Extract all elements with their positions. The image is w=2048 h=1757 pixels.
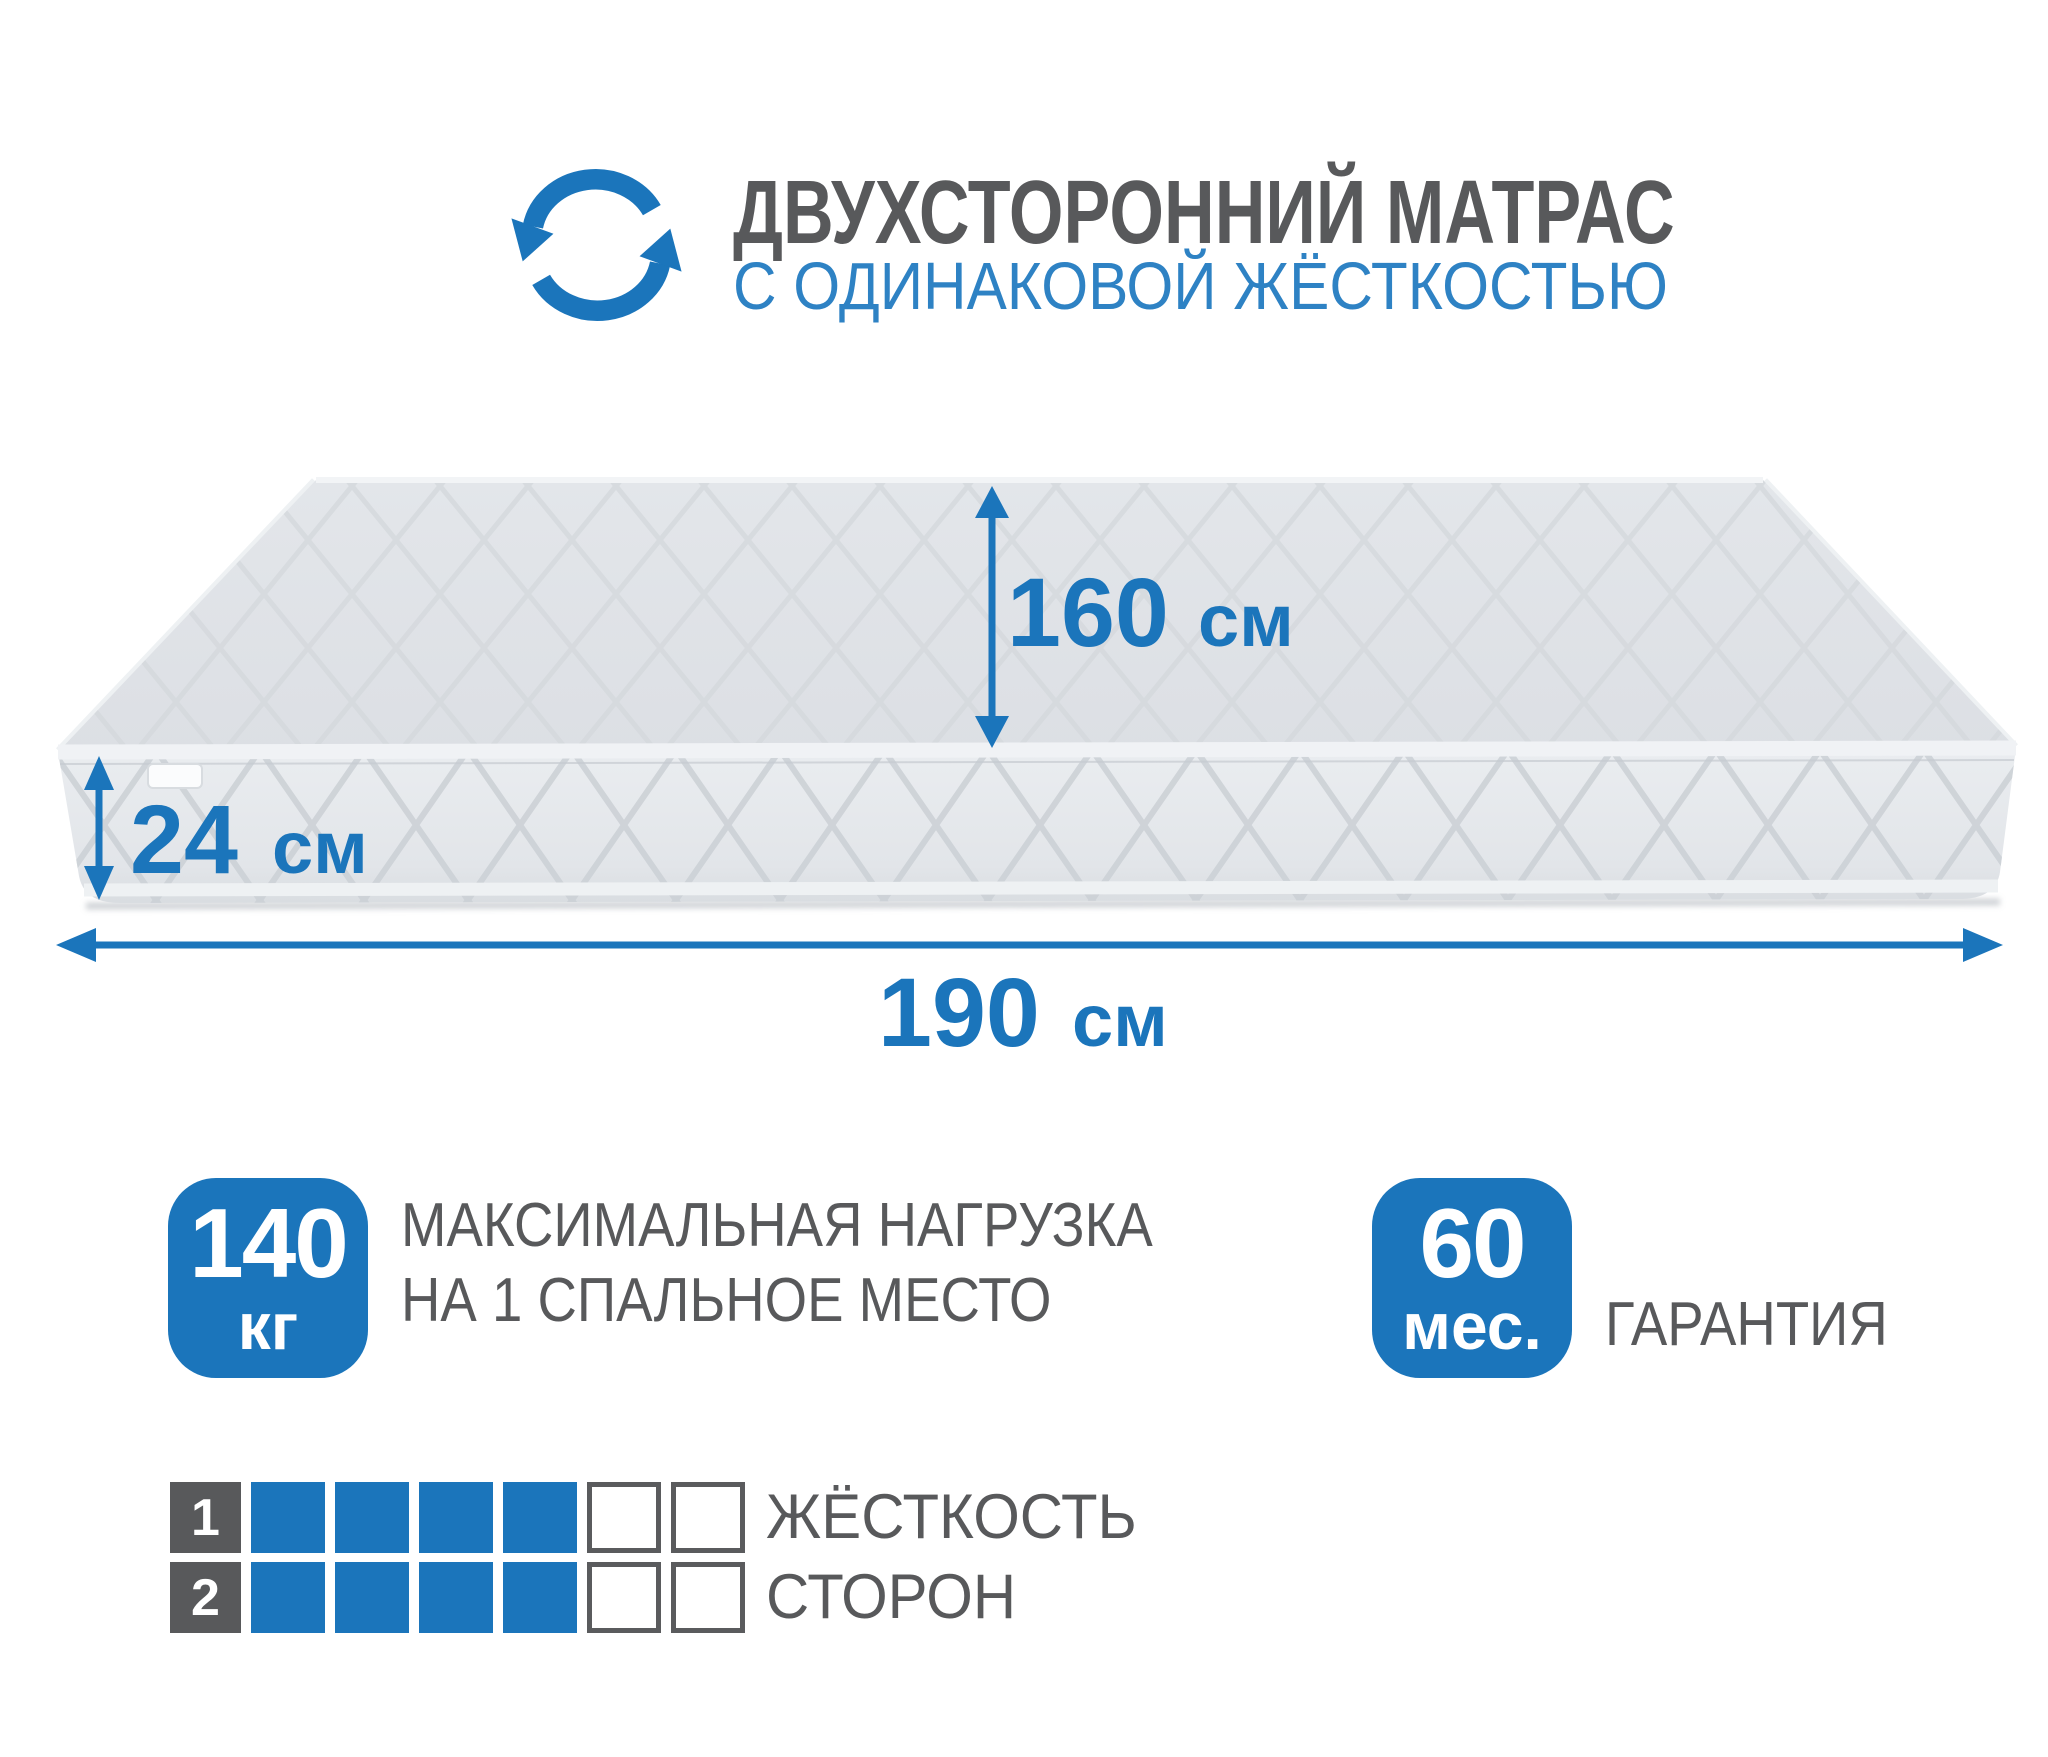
mattress-shadow (86, 902, 2000, 906)
hardness-row-side2: 2 (170, 1562, 745, 1633)
hardness-cell-filled (419, 1482, 493, 1553)
hardness-cell-filled (335, 1482, 409, 1553)
hardness-cell-filled (251, 1482, 325, 1553)
hardness-cell-filled (419, 1562, 493, 1633)
width-value: 190 (878, 958, 1040, 1067)
hardness-scale-label: ЖЁСТКОСТЬ СТОРОН (766, 1477, 1137, 1637)
warranty-badge: 60 мес. (1372, 1178, 1572, 1378)
height-value: 24 (130, 785, 238, 894)
hardness-cell-filled (251, 1562, 325, 1633)
side-number: 1 (170, 1482, 241, 1553)
warranty-label: ГАРАНТИЯ (1605, 1225, 1888, 1425)
hardness-scale: 1 2 (170, 1482, 745, 1633)
height-unit: см (272, 806, 368, 889)
depth-unit: см (1198, 579, 1294, 662)
hardness-cell-empty (587, 1482, 661, 1553)
width-unit: см (1072, 979, 1168, 1062)
max-load-label: МАКСИМАЛЬНАЯ НАГРУЗКА НА 1 СПАЛЬНОЕ МЕСТ… (401, 1188, 1153, 1338)
page-title: ДВУХСТОРОННИЙ МАТРАС (733, 166, 1675, 261)
max-load-value: 140 (189, 1197, 347, 1290)
hardness-cell-filled (503, 1482, 577, 1553)
warranty-unit: мес. (1402, 1293, 1542, 1359)
max-load-badge: 140 кг (168, 1178, 368, 1378)
max-load-unit: кг (238, 1293, 299, 1359)
side-number: 2 (170, 1562, 241, 1633)
max-load-label-line2: НА 1 СПАЛЬНОЕ МЕСТО (401, 1263, 1153, 1338)
hardness-cell-empty (671, 1562, 745, 1633)
rotate-arrows-icon (494, 164, 699, 326)
hardness-label-line1: ЖЁСТКОСТЬ (766, 1477, 1137, 1557)
hardness-cell-filled (335, 1562, 409, 1633)
hardness-cell-empty (587, 1562, 661, 1633)
hardness-cell-filled (503, 1562, 577, 1633)
hardness-label-line2: СТОРОН (766, 1557, 1137, 1637)
width-arrow (56, 928, 2003, 962)
hardness-row-side1: 1 (170, 1482, 745, 1553)
hardness-cell-empty (671, 1482, 745, 1553)
infographic-page: 160 см 24 см 190 см ДВУХСТОРОННИЙ МАТРАС… (0, 0, 2048, 1757)
warranty-value: 60 (1419, 1197, 1524, 1290)
page-subtitle: С ОДИНАКОВОЙ ЖЁСТКОСТЬЮ (733, 252, 1668, 322)
depth-value: 160 (1007, 558, 1169, 667)
max-load-label-line1: МАКСИМАЛЬНАЯ НАГРУЗКА (401, 1188, 1153, 1263)
